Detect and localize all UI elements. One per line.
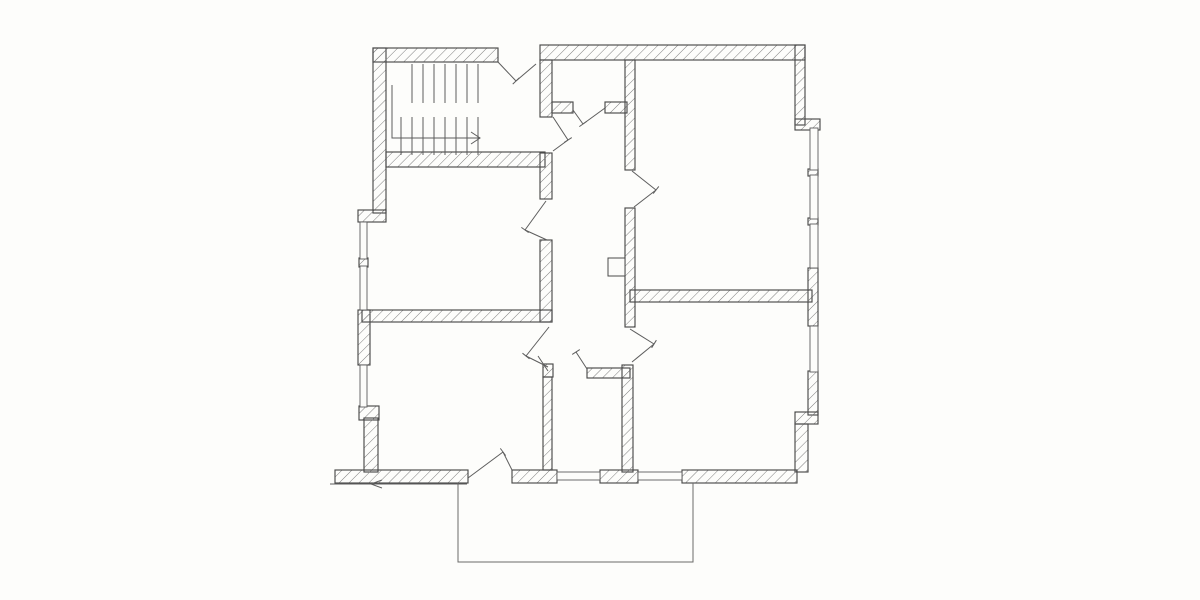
wall-segment bbox=[625, 208, 635, 327]
wall-segment bbox=[362, 310, 552, 322]
door-swing bbox=[522, 327, 549, 367]
wall-segment bbox=[795, 424, 808, 472]
door-leaf-line bbox=[525, 201, 546, 230]
wall-segment bbox=[808, 371, 818, 415]
wall-segment bbox=[358, 210, 386, 222]
floor-plan-svg bbox=[0, 0, 1200, 600]
door-tick bbox=[521, 227, 528, 232]
door-leaf-line bbox=[503, 452, 512, 470]
window-segment bbox=[360, 365, 367, 407]
walls-layer bbox=[335, 45, 820, 483]
windows-layer bbox=[360, 128, 818, 480]
door-leaf-line bbox=[632, 344, 654, 362]
door-tick bbox=[579, 121, 586, 126]
window-segment bbox=[810, 326, 818, 372]
shaft-box bbox=[608, 258, 625, 276]
window-segment bbox=[360, 222, 367, 259]
door-leaf-line bbox=[468, 452, 503, 478]
window-segment bbox=[360, 266, 367, 310]
door-leaf-line bbox=[526, 327, 549, 356]
wall-segment bbox=[795, 45, 805, 125]
door-leaf-line bbox=[498, 62, 516, 81]
wall-segment bbox=[587, 368, 630, 378]
wall-segment bbox=[543, 377, 552, 470]
wall-segment bbox=[625, 60, 635, 170]
floor-plan-page bbox=[0, 0, 1200, 600]
door-tick bbox=[653, 186, 659, 193]
wall-segment bbox=[795, 412, 818, 424]
window-segment bbox=[810, 224, 818, 268]
wall-segment bbox=[512, 470, 557, 483]
wall-segment bbox=[540, 60, 552, 117]
wall-segment bbox=[364, 418, 378, 472]
door-leaf-line bbox=[634, 190, 656, 207]
door-leaf-line bbox=[525, 230, 547, 240]
door-swing bbox=[521, 201, 547, 240]
door-tick bbox=[500, 448, 505, 455]
door-swing bbox=[553, 117, 572, 151]
window-segment bbox=[557, 472, 600, 480]
wall-segment bbox=[630, 290, 812, 302]
door-swing bbox=[468, 448, 512, 478]
door-leaf-line bbox=[553, 117, 568, 140]
balcony-outline bbox=[458, 483, 693, 562]
door-tick bbox=[572, 350, 580, 355]
door-tick bbox=[564, 138, 572, 143]
door-tick bbox=[652, 340, 657, 348]
wall-segment bbox=[622, 365, 633, 472]
wall-segment bbox=[373, 48, 498, 62]
door-leaf-line bbox=[573, 110, 583, 124]
window-segment bbox=[638, 472, 682, 480]
wall-segment bbox=[605, 102, 627, 113]
door-swing bbox=[632, 171, 659, 207]
wall-segment bbox=[386, 152, 545, 167]
balcony-layer bbox=[458, 483, 693, 562]
door-tick bbox=[522, 353, 529, 359]
wall-segment bbox=[552, 102, 573, 113]
door-swing bbox=[498, 62, 536, 84]
window-segment bbox=[810, 175, 818, 219]
wall-segment bbox=[373, 48, 386, 213]
door-swing bbox=[538, 350, 587, 371]
wall-segment bbox=[682, 470, 797, 483]
wall-segment bbox=[540, 45, 805, 60]
door-leaf-line bbox=[630, 329, 654, 344]
door-swing bbox=[573, 108, 605, 127]
door-swing bbox=[630, 329, 656, 362]
wall-segment bbox=[540, 153, 552, 199]
door-leaf-line bbox=[576, 352, 587, 369]
stairs-layer bbox=[392, 64, 480, 155]
window-segment bbox=[810, 128, 818, 170]
wall-segment bbox=[335, 470, 468, 483]
door-leaf-line bbox=[632, 171, 656, 190]
